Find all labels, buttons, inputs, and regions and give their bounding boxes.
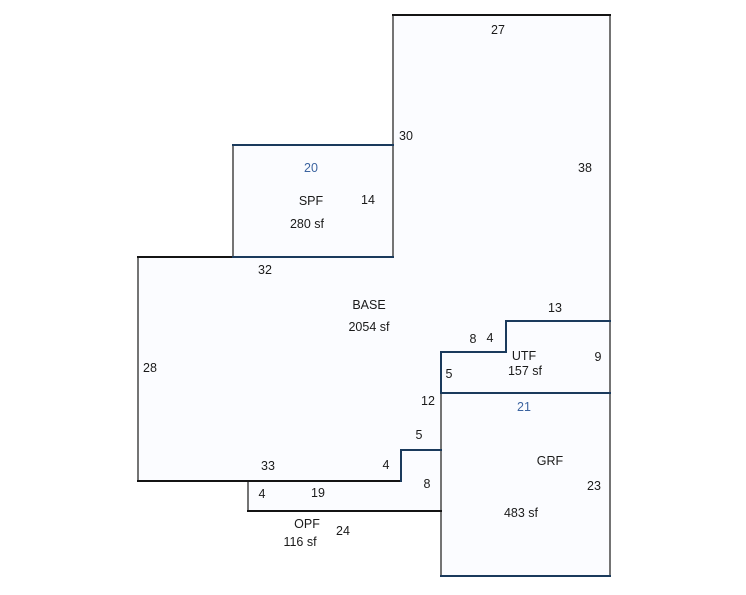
area-label-utf: UTF: [512, 349, 537, 363]
dim-label-5-step: 5: [416, 428, 423, 442]
dim-label-20: 20: [304, 161, 318, 175]
dim-label-8-opf: 8: [424, 477, 431, 491]
dim-label-4-step: 4: [383, 458, 390, 472]
dim-label-28: 28: [143, 361, 157, 375]
area-size-utf: 157 sf: [508, 364, 543, 378]
dim-label-30: 30: [399, 129, 413, 143]
area-label-opf: OPF: [294, 517, 320, 531]
dim-label-33: 33: [261, 459, 275, 473]
area-size-base: 2054 sf: [348, 320, 390, 334]
floorplan-sketch: 27303820SPF14280 sf32BASE132054 sf84UTF9…: [0, 0, 746, 595]
dim-label-12: 12: [421, 394, 435, 408]
dim-label-4-utf: 4: [487, 331, 494, 345]
dim-label-24: 24: [336, 524, 350, 538]
dim-label-38: 38: [578, 161, 592, 175]
sketch-canvas: 27303820SPF14280 sf32BASE132054 sf84UTF9…: [0, 0, 746, 595]
area-size-opf: 116 sf: [283, 535, 317, 549]
dim-label-13: 13: [548, 301, 562, 315]
area-polygon-grf: [441, 393, 610, 576]
area-label-base: BASE: [352, 298, 385, 312]
dim-label-32: 32: [258, 263, 272, 277]
area-size-spf: 280 sf: [290, 217, 325, 231]
dim-label-5-utf: 5: [446, 367, 453, 381]
dim-label-27: 27: [491, 23, 505, 37]
dim-label-21: 21: [517, 400, 531, 414]
area-label-grf: GRF: [537, 454, 564, 468]
area-fill-layer: [138, 15, 610, 576]
dim-label-14: 14: [361, 193, 375, 207]
dim-label-19: 19: [311, 486, 325, 500]
dim-label-4-opf: 4: [259, 487, 266, 501]
dim-label-8-utf: 8: [470, 332, 477, 346]
dim-label-9: 9: [595, 350, 602, 364]
dim-label-23: 23: [587, 479, 601, 493]
area-size-grf: 483 sf: [504, 506, 539, 520]
area-label-spf: SPF: [299, 194, 324, 208]
